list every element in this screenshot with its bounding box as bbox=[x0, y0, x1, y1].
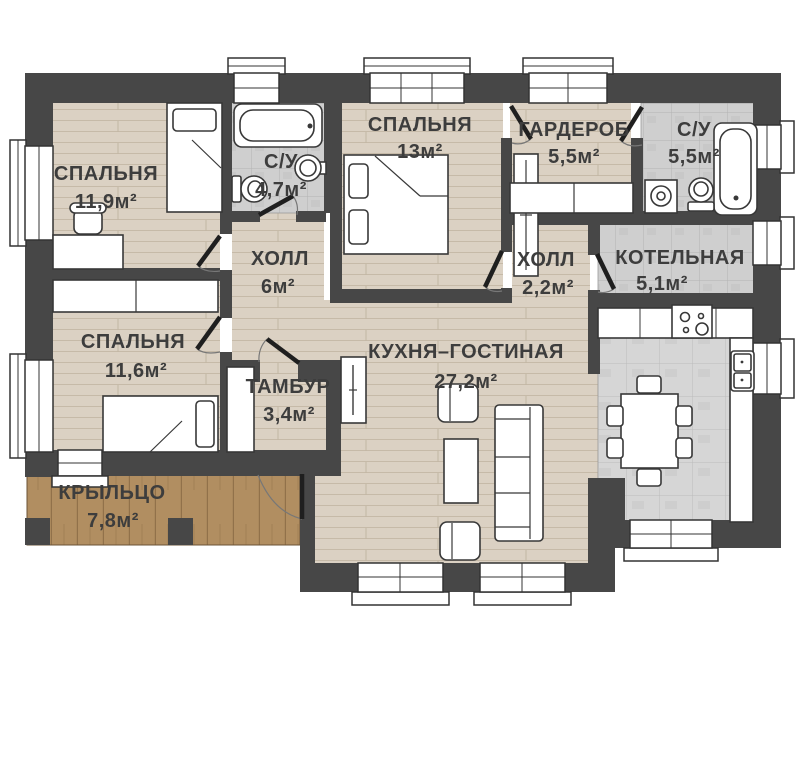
window-bottom-living-2 bbox=[474, 563, 571, 605]
toilet-icon bbox=[688, 178, 714, 211]
shelf-unit-icon bbox=[510, 183, 633, 213]
room-label-hall2-name: ХОЛЛ bbox=[517, 249, 575, 271]
dining-chair-icon bbox=[676, 406, 692, 426]
dining-chair-icon bbox=[637, 376, 661, 393]
stove-icon bbox=[672, 305, 712, 338]
sofa-icon bbox=[495, 405, 543, 541]
window-top-wardrobe bbox=[523, 58, 613, 103]
room-label-porch-area: 7,8м² bbox=[87, 510, 139, 532]
room-label-wardrobe-area: 5,5м² bbox=[548, 146, 600, 168]
window-bottom-kitchen bbox=[624, 520, 718, 561]
room-label-boiler-area: 5,1м² bbox=[636, 273, 688, 295]
desk-icon bbox=[53, 235, 123, 269]
room-label-porch-name: КРЫЛЬЦО bbox=[58, 482, 165, 504]
room-label-hall1-area: 6м² bbox=[261, 276, 295, 298]
room-label-bathroom1-name: С/У bbox=[264, 151, 298, 173]
bathtub-icon bbox=[714, 123, 757, 215]
window-top-bedroom3 bbox=[364, 58, 470, 103]
single-bed-icon bbox=[103, 396, 218, 452]
room-label-bedroom1-name: СПАЛЬНЯ bbox=[54, 163, 158, 185]
room-label-vestibule-name: ТАМБУР bbox=[246, 376, 331, 398]
room-label-bathroom1-area: 4,7м² bbox=[255, 179, 307, 201]
armchair-icon bbox=[440, 522, 480, 560]
porch-post-left bbox=[25, 518, 50, 545]
room-label-kitchen-area: 27,2м² bbox=[434, 371, 497, 393]
room-label-kitchen-name: КУХНЯ–ГОСТИНАЯ bbox=[368, 341, 564, 363]
bathtub-icon bbox=[234, 104, 322, 147]
room-label-bathroom2-area: 5,5м² bbox=[668, 146, 720, 168]
room-label-boiler-name: КОТЕЛЬНАЯ bbox=[615, 247, 745, 269]
dining-chair-icon bbox=[676, 438, 692, 458]
window-right-bathroom2 bbox=[753, 121, 794, 173]
window-left-bedroom1 bbox=[10, 140, 53, 246]
window-left-bedroom2 bbox=[10, 354, 53, 458]
window-right-boiler bbox=[753, 217, 794, 269]
floor-plan-page: СПАЛЬНЯ 11,9м² С/У 4,7м² СПАЛЬНЯ 13м² ГА… bbox=[0, 0, 806, 765]
porch-post-right bbox=[168, 518, 193, 545]
single-bed-icon bbox=[167, 103, 222, 212]
room-label-bathroom2-name: С/У bbox=[677, 119, 711, 141]
dining-table-icon bbox=[621, 394, 678, 468]
washing-machine-icon bbox=[645, 180, 677, 213]
room-label-bedroom3-area: 13м² bbox=[397, 141, 443, 163]
dresser-icon bbox=[53, 280, 218, 312]
dining-chair-icon bbox=[607, 438, 623, 458]
room-label-bedroom3-name: СПАЛЬНЯ bbox=[368, 114, 472, 136]
room-label-hall1-name: ХОЛЛ bbox=[251, 248, 309, 270]
tv-cabinet-icon bbox=[341, 357, 366, 423]
room-label-bedroom2-area: 11,6м² bbox=[105, 360, 167, 382]
window-right-kitchen bbox=[753, 339, 794, 398]
window-bottom-living-1 bbox=[352, 563, 449, 605]
coffee-table-icon bbox=[444, 439, 478, 503]
window-top-bathroom1 bbox=[228, 58, 285, 103]
kitchen-sink-icon bbox=[731, 351, 754, 391]
double-bed-icon bbox=[344, 155, 448, 254]
dining-chair-icon bbox=[607, 406, 623, 426]
room-label-hall2-area: 2,2м² bbox=[522, 277, 574, 299]
room-label-vestibule-area: 3,4м² bbox=[263, 404, 315, 426]
floor-plan: СПАЛЬНЯ 11,9м² С/У 4,7м² СПАЛЬНЯ 13м² ГА… bbox=[0, 0, 806, 765]
room-label-bedroom1-area: 11,9м² bbox=[75, 191, 137, 213]
room-label-wardrobe-name: ГАРДЕРОБ bbox=[518, 119, 629, 141]
room-label-bedroom2-name: СПАЛЬНЯ bbox=[81, 331, 185, 353]
dining-chair-icon bbox=[637, 469, 661, 486]
